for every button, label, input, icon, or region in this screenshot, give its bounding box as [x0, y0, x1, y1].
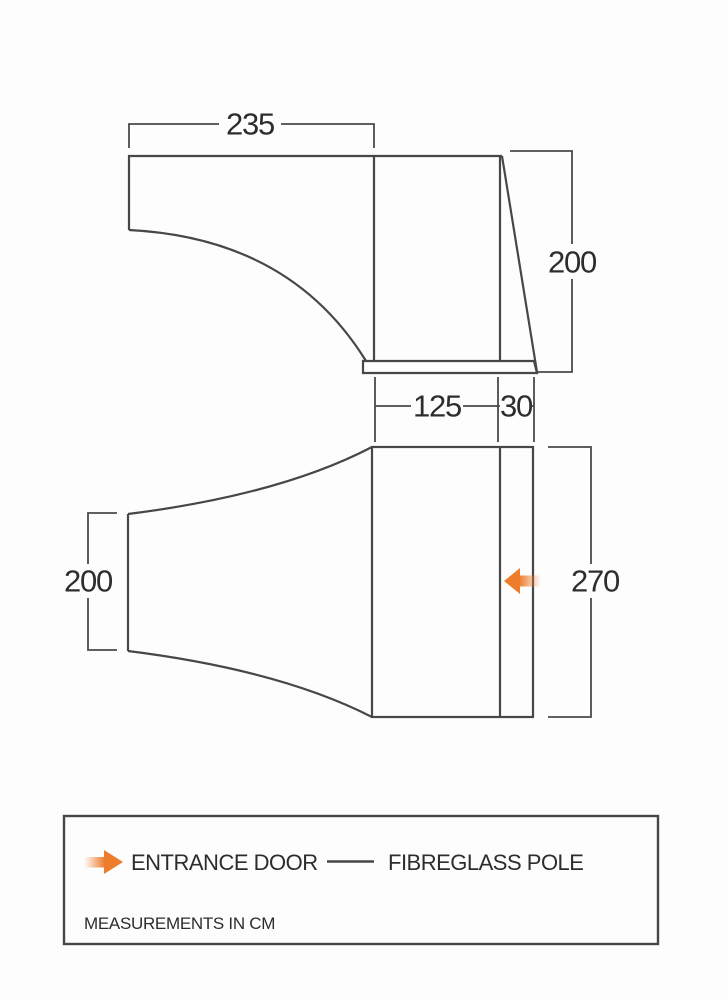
dim-label-125: 125 [413, 389, 461, 424]
dim-label-235: 235 [226, 107, 274, 142]
side-view-top-outline [129, 156, 502, 230]
side-view-ground-bar [363, 361, 537, 373]
dim-label-200-tunnel: 200 [64, 564, 113, 599]
dim-overall-width: 270 [548, 447, 623, 717]
tent-dimensions-diagram: 235 200 125 30 [0, 0, 727, 999]
dim-label-200-height: 200 [548, 245, 597, 280]
plan-view-tunnel-curve-bottom [128, 651, 372, 717]
dim-label-30: 30 [500, 389, 533, 424]
dim-canopy-width: 235 [129, 106, 374, 148]
side-view-canopy-curve [129, 230, 366, 361]
side-view-drawing [129, 156, 537, 373]
plan-view-drawing [128, 447, 541, 717]
dim-label-270: 270 [571, 564, 620, 599]
legend-entrance-door-label: ENTRANCE DOOR [131, 850, 318, 875]
legend-measurements-note: MEASUREMENTS IN CM [84, 914, 275, 933]
legend: ENTRANCE DOOR FIBREGLASS POLE MEASUREMEN… [64, 816, 658, 944]
legend-fibreglass-pole-label: FIBREGLASS POLE [388, 850, 583, 875]
legend-arrow-tail [84, 857, 105, 868]
entrance-door-arrow-icon [504, 568, 541, 594]
side-view-rear-slant [502, 156, 537, 372]
dim-side-height: 200 [510, 151, 600, 372]
dim-tunnel-width: 200 [61, 513, 117, 650]
plan-view-tunnel-curve-top [128, 447, 372, 514]
entrance-arrow-tail [519, 576, 541, 587]
entrance-arrow-head [504, 568, 520, 594]
extension-lines: 125 30 [375, 377, 534, 442]
entrance-door-legend-icon [84, 850, 123, 874]
legend-arrow-head [104, 850, 123, 874]
